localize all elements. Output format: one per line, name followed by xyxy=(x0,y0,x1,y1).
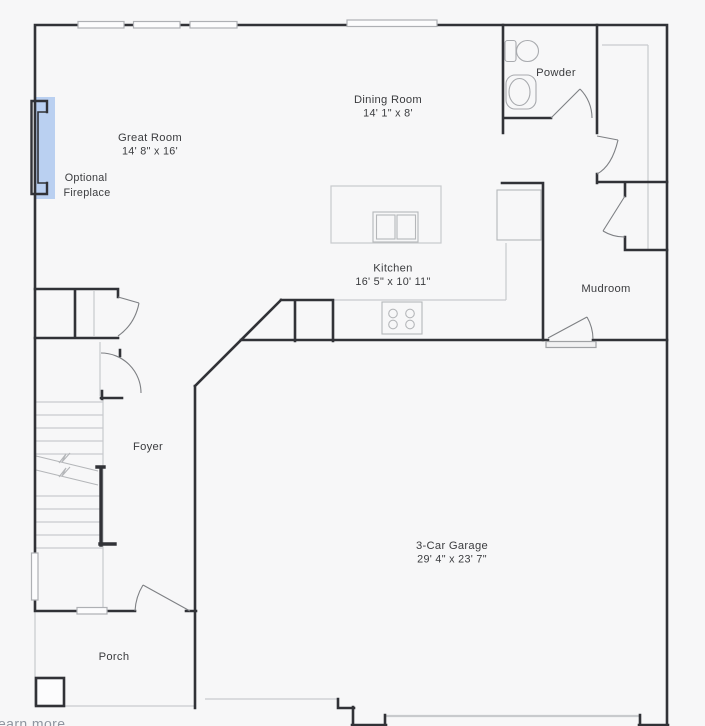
optional-fireplace-note-line2: Fireplace xyxy=(63,187,110,199)
porch-label: Porch xyxy=(99,651,130,663)
foyer-label: Foyer xyxy=(133,441,163,453)
window xyxy=(77,608,107,615)
window xyxy=(347,20,437,27)
dining-room-label: Dining Room xyxy=(354,94,422,106)
plan-background xyxy=(0,0,705,726)
door-threshold xyxy=(546,342,596,348)
kitchen-label: Kitchen xyxy=(373,263,412,275)
kitchen-dimensions: 16' 5" x 10' 11" xyxy=(355,276,430,288)
porch-post xyxy=(36,678,64,706)
window xyxy=(78,22,124,29)
optional-fireplace-note-line1: Optional xyxy=(65,172,108,184)
garage-dimensions: 29' 4" x 23' 7" xyxy=(417,554,487,566)
window xyxy=(32,553,39,600)
powder-label: Powder xyxy=(536,67,576,79)
garage-label: 3-Car Garage xyxy=(416,540,488,552)
learn-more-link[interactable]: earn more xyxy=(0,716,65,726)
great-room-label: Great Room xyxy=(118,132,182,144)
mudroom-label: Mudroom xyxy=(581,283,630,295)
dining-room-dimensions: 14' 1" x 8' xyxy=(363,108,413,120)
window xyxy=(134,22,181,29)
floor-plan: Great Room 14' 8" x 16' Dining Room 14' … xyxy=(0,0,705,726)
great-room-dimensions: 14' 8" x 16' xyxy=(122,146,178,158)
window xyxy=(190,22,237,29)
